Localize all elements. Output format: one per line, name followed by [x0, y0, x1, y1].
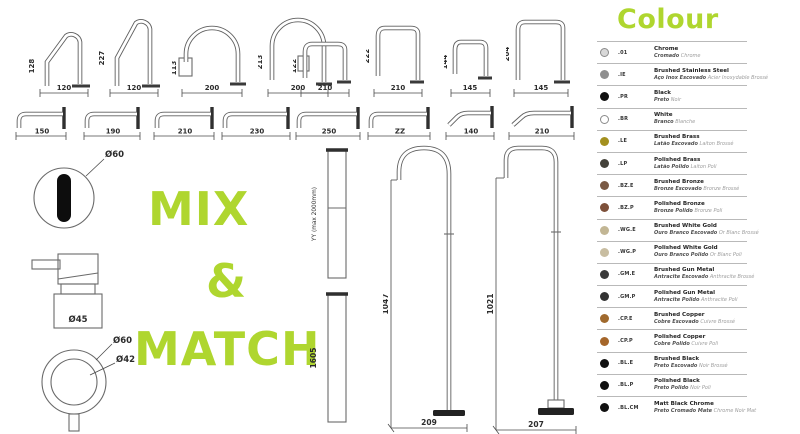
colour-name-en: Brushed Bronze — [654, 179, 747, 186]
colour-legend-title: Colour — [617, 4, 797, 35]
colour-code: .GM.P — [618, 294, 654, 300]
mix-match-line1: MIX — [148, 186, 249, 232]
colour-legend-row: .WG.E Brushed White Gold Ouro Branco Esc… — [597, 219, 747, 241]
base-flange — [433, 410, 465, 416]
floor-spout-square: 1021 207 — [486, 134, 586, 434]
colour-name-fr: Noir Brossé — [699, 363, 728, 369]
colour-code: .GM.E — [618, 271, 654, 277]
colour-name-fr: Cuivre Brossé — [700, 319, 735, 325]
colour-name-pt: Ouro Branco Escovado — [654, 230, 717, 236]
colour-names: Polished Black Preto Polido Noir Poli — [654, 378, 747, 392]
dim-outer-diameter: Ø60 — [113, 335, 132, 346]
colour-swatch — [600, 292, 609, 301]
colour-names: Polished Bronze Bronze Polido Bronze Pol… — [654, 201, 747, 215]
dim-base: 207 — [528, 420, 544, 429]
colour-name-translations: Preto Cromado Mate Chrome Noir Mat — [654, 408, 756, 415]
dim-height: 222 — [366, 49, 371, 64]
colour-name-pt: Preto Escovado — [654, 363, 697, 369]
colour-name-fr: Bronze Poli — [694, 208, 722, 214]
colour-code: .01 — [618, 50, 654, 56]
colour-name-pt: Antracite Polido — [654, 297, 699, 303]
colour-legend-row: .GM.E Brushed Gun Metal Antracite Escova… — [597, 263, 747, 285]
dim-width: 200 — [205, 84, 220, 92]
colour-name-translations: Latão Escovado Laiton Brossé — [654, 141, 747, 148]
sensor-window — [57, 174, 71, 222]
dim-height: 1021 — [486, 294, 495, 315]
colour-name-translations: Ouro Branco Escovado Or Blanc Brossé — [654, 230, 759, 237]
colour-legend-row: .LP Polished Brass Latão Polido Laiton P… — [597, 152, 747, 174]
spout-profile-3: 200 113 — [172, 10, 254, 100]
colour-legend-row: .BZ.E Brushed Bronze Bronze Escovado Bro… — [597, 174, 747, 196]
colour-name-pt: Cromado — [654, 53, 679, 59]
mix-match-line2: & — [206, 258, 247, 304]
colour-legend-list: .01 Chrome Cromado Chrome .IE Brushed St… — [597, 41, 747, 418]
colour-name-pt: Branco — [654, 119, 674, 125]
dim-diameter: Ø45 — [68, 314, 87, 325]
dim-height: 144 — [444, 55, 449, 70]
dim-base: 209 — [421, 418, 437, 427]
dim-width: 145 — [463, 84, 478, 92]
colour-legend-row: .CP.P Polished Copper Cobre Polido Cuivr… — [597, 329, 747, 351]
spout-profile-5: 210 122 — [293, 10, 355, 100]
dim-height: 1047 — [383, 294, 390, 315]
colour-swatch — [600, 181, 609, 190]
colour-name-pt: Preto Cromado Mate — [654, 408, 712, 414]
colour-code: .PR — [618, 94, 654, 100]
colour-code: .BL.E — [618, 360, 654, 366]
dim-height: 204 — [506, 47, 511, 62]
colour-legend-row: .BL.E Brushed Black Preto Escovado Noir … — [597, 352, 747, 374]
dim-width: 120 — [127, 84, 142, 92]
colour-swatch — [600, 203, 609, 212]
colour-name-en: Polished Black — [654, 378, 747, 385]
dim-height: 128 — [28, 59, 36, 74]
dim-width: 145 — [534, 84, 549, 92]
colour-swatch — [600, 248, 609, 257]
dim-width: 210 — [391, 84, 406, 92]
colour-name-fr: Chrome Noir Mat — [714, 408, 756, 414]
colour-names: Black Preto Noir — [654, 90, 747, 104]
colour-names: Brushed Gun Metal Antracite Escovado Ant… — [654, 267, 754, 281]
colour-code: .BZ.P — [618, 205, 654, 211]
colour-code: .IE — [618, 72, 654, 78]
colour-names: Brushed Brass Latão Escovado Laiton Bros… — [654, 134, 747, 148]
colour-code: .CP.E — [618, 316, 654, 322]
dim-height: 213 — [258, 55, 264, 70]
colour-name-en: Polished Brass — [654, 157, 747, 164]
colour-name-translations: Aço Inox Escovado Acier Inoxydable Bross… — [654, 75, 768, 82]
colour-name-pt: Preto — [654, 97, 669, 103]
colour-name-translations: Bronze Polido Bronze Poli — [654, 208, 747, 215]
colour-name-fr: Chrome — [681, 53, 701, 59]
colour-name-fr: Cuivre Poli — [691, 341, 718, 347]
dim-column-height: 1605 — [309, 348, 318, 369]
colour-name-translations: Preto Escovado Noir Brossé — [654, 363, 747, 370]
colour-name-pt: Preto Polido — [654, 385, 688, 391]
colour-name-fr: Anthracite Brossé — [710, 274, 754, 280]
spout-profile-8: 145 204 — [506, 10, 574, 100]
colour-name-fr: Anthracite Poli — [701, 297, 737, 303]
wall-spout-5: 250 — [292, 104, 364, 142]
dim-height: 227 — [98, 51, 106, 66]
colour-legend-row: .BL.CM Matt Black Chrome Preto Cromado M… — [597, 396, 747, 418]
colour-code: .CP.P — [618, 338, 654, 344]
dim-length: 230 — [250, 128, 265, 136]
colour-name-translations: Cromado Chrome — [654, 53, 747, 60]
colour-code: .LP — [618, 161, 654, 167]
colour-names: Brushed Bronze Bronze Escovado Bronze Br… — [654, 179, 747, 193]
colour-name-fr: Blanche — [675, 119, 695, 125]
dim-length: 150 — [35, 128, 50, 136]
colour-name-translations: Bronze Escovado Bronze Brossé — [654, 186, 747, 193]
colour-name-translations: Preto Noir — [654, 97, 747, 104]
spout-profile-2: 120 227 — [96, 10, 166, 100]
colour-name-pt: Bronze Escovado — [654, 186, 702, 192]
colour-code: .WG.P — [618, 249, 654, 255]
colour-legend-row: .WG.P Polished White Gold Ouro Branco Po… — [597, 241, 747, 263]
colour-legend: Colour .01 Chrome Cromado Chrome .IE Bru… — [597, 2, 797, 418]
colour-swatch — [600, 314, 609, 323]
colour-name-translations: Antracite Polido Anthracite Poli — [654, 297, 747, 304]
colour-names: White Branco Blanche — [654, 112, 747, 126]
colour-names: Matt Black Chrome Preto Cromado Mate Chr… — [654, 401, 756, 415]
spout-profile-1: 120 128 — [26, 10, 96, 100]
colour-legend-row: .IE Brushed Stainless Steel Aço Inox Esc… — [597, 63, 747, 85]
colour-name-pt: Aço Inox Escovado — [654, 75, 706, 81]
colour-name-fr: Noir Poli — [690, 385, 711, 391]
colour-code: .BL.P — [618, 382, 654, 388]
colour-swatch — [600, 359, 609, 368]
colour-swatch — [600, 70, 609, 79]
colour-name-fr: Or Blanc Brossé — [719, 230, 759, 236]
colour-names: Polished Brass Latão Polido Laiton Poli — [654, 157, 747, 171]
dim-length: 210 — [178, 128, 193, 136]
catalog-page: 120 128 120 227 200 113 200 213 — [0, 0, 800, 434]
colour-swatch — [600, 337, 609, 346]
colour-legend-row: .GM.P Polished Gun Metal Antracite Polid… — [597, 285, 747, 307]
colour-name-pt: Cobre Polido — [654, 341, 690, 347]
colour-swatch — [600, 270, 609, 279]
colour-code: .BL.CM — [618, 405, 654, 411]
spout-profile-7: 145 144 — [444, 10, 496, 100]
colour-name-en: Brushed Copper — [654, 312, 747, 319]
colour-swatch — [600, 381, 609, 390]
colour-code: .WG.E — [618, 227, 654, 233]
colour-code: .LE — [618, 138, 654, 144]
colour-name-translations: Latão Polido Laiton Poli — [654, 164, 747, 171]
colour-name-translations: Preto Polido Noir Poli — [654, 385, 747, 392]
wall-spout-1: 150 — [12, 104, 70, 142]
colour-names: Brushed Copper Cobre Escovado Cuivre Bro… — [654, 312, 747, 326]
colour-name-pt: Bronze Polido — [654, 208, 693, 214]
colour-name-pt: Antracite Escovado — [654, 274, 708, 280]
colour-name-translations: Cobre Escovado Cuivre Brossé — [654, 319, 747, 326]
colour-names: Polished Copper Cobre Polido Cuivre Poli — [654, 334, 747, 348]
colour-names: Polished Gun Metal Antracite Polido Anth… — [654, 290, 747, 304]
dim-length: 250 — [322, 128, 337, 136]
colour-code: .BR — [618, 116, 654, 122]
colour-name-pt: Latão Escovado — [654, 141, 698, 147]
sensor-top-view: Ø60 — [18, 144, 130, 240]
colour-name-en: Polished White Gold — [654, 245, 747, 252]
colour-name-pt: Ouro Branco Polido — [654, 252, 708, 258]
colour-swatch — [600, 115, 609, 124]
colour-name-pt: Latão Polido — [654, 164, 689, 170]
mixer-side-view: Ø45 — [28, 246, 120, 330]
mix-match-line3: MATCH — [134, 326, 320, 372]
riser-column-yy: YY (max 2000mm) — [300, 144, 352, 284]
colour-legend-row: .PR Black Preto Noir — [597, 85, 747, 107]
handle-top-view: Ø60 Ø42 — [16, 330, 140, 432]
colour-swatch — [600, 48, 609, 57]
colour-names: Brushed Stainless Steel Aço Inox Escovad… — [654, 68, 768, 82]
colour-name-fr: Or Blanc Poli — [710, 252, 742, 258]
colour-swatch — [600, 92, 609, 101]
colour-name-translations: Cobre Polido Cuivre Poli — [654, 341, 747, 348]
colour-name-fr: Noir — [671, 97, 681, 103]
colour-name-en: Polished Copper — [654, 334, 747, 341]
colour-names: Polished White Gold Ouro Branco Polido O… — [654, 245, 747, 259]
colour-legend-row: .BL.P Polished Black Preto Polido Noir P… — [597, 374, 747, 396]
colour-legend-row: .01 Chrome Cromado Chrome — [597, 41, 747, 63]
base-flange — [538, 408, 574, 415]
floor-spout-curved: 1047 209 — [383, 134, 478, 434]
colour-legend-row: .CP.E Brushed Copper Cobre Escovado Cuiv… — [597, 307, 747, 329]
colour-name-translations: Ouro Branco Polido Or Blanc Poli — [654, 252, 747, 259]
colour-name-translations: Antracite Escovado Anthracite Brossé — [654, 274, 754, 281]
spout-profile-6: 210 222 — [366, 10, 428, 100]
colour-names: Chrome Cromado Chrome — [654, 46, 747, 60]
colour-name-en: Chrome — [654, 46, 747, 53]
dim-column-height: YY (max 2000mm) — [312, 187, 318, 242]
wall-spout-4: 230 — [218, 104, 294, 142]
dim-height: 122 — [293, 59, 298, 74]
colour-name-fr: Laiton Brossé — [700, 141, 734, 147]
colour-name-fr: Bronze Brossé — [703, 186, 739, 192]
riser-column-1605: 1605 — [300, 288, 352, 428]
colour-name-en: Matt Black Chrome — [654, 401, 756, 408]
colour-name-fr: Acier Inoxydable Brossé — [708, 75, 768, 81]
colour-names: Brushed White Gold Ouro Branco Escovado … — [654, 223, 759, 237]
dim-length: 190 — [106, 128, 121, 136]
colour-name-en: Brushed Stainless Steel — [654, 68, 768, 75]
colour-legend-row: .BZ.P Polished Bronze Bronze Polido Bron… — [597, 196, 747, 218]
colour-name-translations: Branco Blanche — [654, 119, 747, 126]
colour-swatch — [600, 403, 609, 412]
colour-name-en: Black — [654, 90, 747, 97]
dim-inner-diameter: Ø42 — [116, 354, 135, 365]
wall-spout-3: 210 — [150, 104, 218, 142]
colour-names: Brushed Black Preto Escovado Noir Brossé — [654, 356, 747, 370]
colour-legend-row: .LE Brushed Brass Latão Escovado Laiton … — [597, 130, 747, 152]
colour-name-en: White — [654, 112, 747, 119]
dim-width: 210 — [318, 84, 333, 92]
dim-height: 113 — [172, 61, 178, 76]
dim-width: 120 — [57, 84, 72, 92]
dim-diameter: Ø60 — [105, 149, 124, 160]
colour-name-pt: Cobre Escovado — [654, 319, 699, 325]
colour-swatch — [600, 226, 609, 235]
colour-swatch — [600, 137, 609, 146]
colour-code: .BZ.E — [618, 183, 654, 189]
colour-name-fr: Laiton Poli — [691, 164, 717, 170]
colour-name-en: Polished Gun Metal — [654, 290, 747, 297]
colour-name-en: Polished Bronze — [654, 201, 747, 208]
wall-spout-2: 190 — [80, 104, 144, 142]
colour-swatch — [600, 159, 609, 168]
colour-legend-row: .BR White Branco Blanche — [597, 108, 747, 130]
